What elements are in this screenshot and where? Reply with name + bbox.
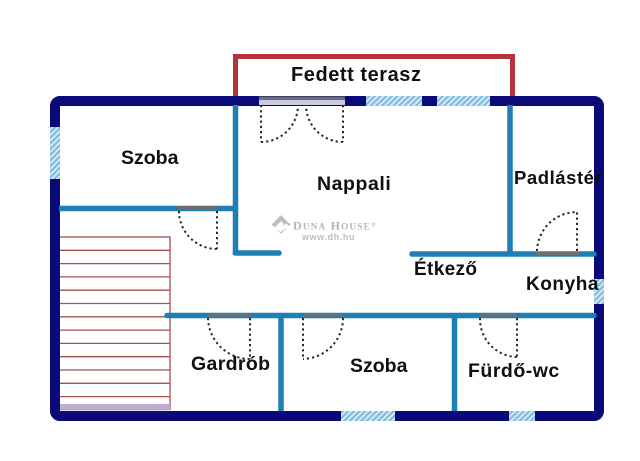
svg-text:Gardrób: Gardrób bbox=[191, 353, 270, 375]
svg-text:Fürdő-wc: Fürdő-wc bbox=[468, 360, 560, 382]
svg-text:Padlástér: Padlástér bbox=[514, 167, 602, 188]
svg-text:Konyha: Konyha bbox=[526, 274, 599, 295]
svg-text:Étkező: Étkező bbox=[414, 258, 477, 280]
svg-text:Szoba: Szoba bbox=[121, 147, 179, 169]
svg-text:www.dh.hu: www.dh.hu bbox=[301, 232, 355, 242]
svg-text:Fedett terasz: Fedett terasz bbox=[291, 64, 422, 86]
svg-text:DUNA HOUSE®: DUNA HOUSE® bbox=[293, 219, 377, 233]
svg-text:Nappali: Nappali bbox=[317, 173, 391, 195]
svg-text:Szoba: Szoba bbox=[350, 355, 408, 377]
